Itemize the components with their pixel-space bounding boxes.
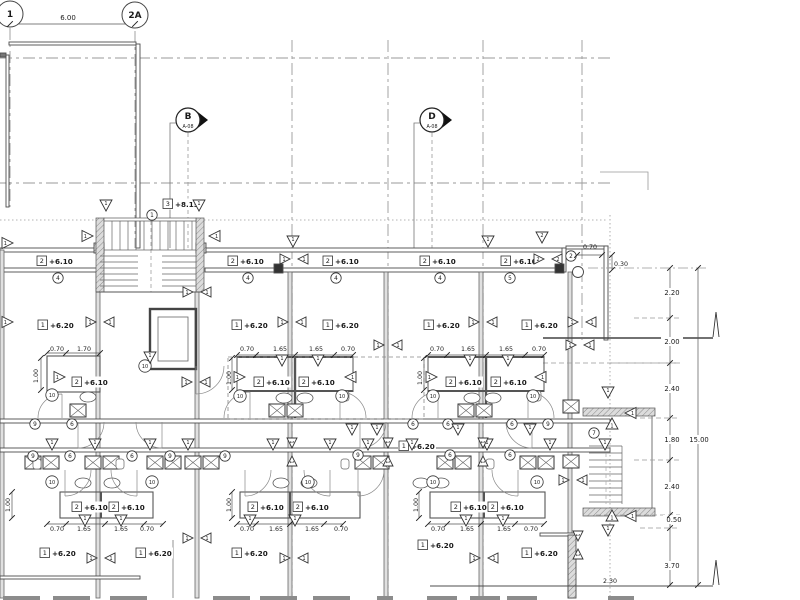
triangle-number: 1 bbox=[291, 237, 294, 243]
bowtie-number: 1 bbox=[491, 320, 494, 326]
dim-text: 1.00 bbox=[226, 498, 233, 512]
label-box-number: 2 bbox=[257, 378, 261, 386]
bowtie-number: 1 bbox=[588, 343, 591, 349]
bowtie-number: 1 bbox=[302, 257, 305, 263]
shower-box bbox=[563, 400, 579, 413]
label-box-number: 1 bbox=[41, 321, 45, 329]
circled-number: 9 bbox=[543, 419, 553, 429]
shower-box bbox=[85, 456, 101, 469]
dim-text: 0.70 bbox=[334, 526, 348, 533]
triangle-marker: 1 bbox=[602, 387, 614, 398]
triangle-number: 1 bbox=[410, 440, 413, 446]
bowtie-number: 1 bbox=[185, 290, 188, 296]
bowtie-number: 1 bbox=[205, 290, 208, 296]
party-wall bbox=[0, 250, 4, 598]
label-elevation: +6.10 bbox=[240, 257, 264, 266]
triangle-marker: 1 bbox=[100, 200, 112, 211]
label-box-number: 1 bbox=[421, 541, 425, 549]
circle-number: 9 bbox=[31, 454, 35, 460]
label-elevation: +6.10 bbox=[500, 503, 524, 512]
section-letter: D bbox=[428, 112, 435, 122]
label-box-number: 2 bbox=[494, 378, 498, 386]
triangle-number: 1 bbox=[606, 388, 609, 394]
bowtie-number: 1 bbox=[302, 556, 305, 562]
circle-number: 10 bbox=[237, 394, 243, 400]
floor-plan-canvas: 12A6.00BA-08DA-083+8.152+6.102+6.102+6.1… bbox=[0, 0, 800, 600]
circle-number: 6 bbox=[448, 453, 452, 459]
level-label: 2+6.10 bbox=[108, 502, 146, 513]
triangle-marker: 2 bbox=[536, 232, 548, 243]
bowtie-marker: 11 bbox=[470, 553, 498, 563]
dim-chain-text: 2.00 bbox=[664, 338, 679, 346]
circle-number: 4 bbox=[246, 276, 250, 282]
break-flags bbox=[713, 312, 719, 585]
bowtie-number: 1 bbox=[581, 478, 584, 484]
bowtie-number: 1 bbox=[479, 440, 485, 443]
bowtie-number: 1 bbox=[570, 320, 573, 326]
circle-number: 6 bbox=[411, 422, 415, 428]
triangle-number: 1 bbox=[104, 201, 107, 207]
circled-number: 9 bbox=[30, 419, 40, 429]
grid-bubble-label: 1 bbox=[7, 10, 13, 20]
level-label: 2+6.10 bbox=[450, 502, 488, 513]
bowtie-number: 1 bbox=[590, 320, 593, 326]
label-elevation: +6.20 bbox=[534, 549, 558, 558]
label-box-number: 1 bbox=[235, 549, 239, 557]
level-label: 2+6.10 bbox=[445, 377, 483, 388]
wall-stub bbox=[53, 596, 90, 600]
label-elevation: +6.20 bbox=[335, 321, 359, 330]
bowtie-marker: 11 bbox=[559, 475, 587, 485]
circle-number: 9 bbox=[33, 422, 37, 428]
level-label: 1+6.20 bbox=[37, 320, 75, 331]
dim-text: 1.65 bbox=[269, 526, 283, 533]
circled-number: 10 bbox=[146, 476, 158, 488]
shower-box bbox=[185, 456, 201, 469]
circle-number: 6 bbox=[70, 422, 74, 428]
triangle-number: 1 bbox=[351, 375, 354, 381]
bowtie-number: 1 bbox=[280, 320, 283, 326]
label-box-number: 2 bbox=[231, 257, 235, 265]
label-box-number: 1 bbox=[525, 321, 529, 329]
triangle-marker: 1 bbox=[452, 424, 464, 435]
label-elevation: +6.10 bbox=[458, 378, 482, 387]
level-label: 1+6.20 bbox=[322, 320, 360, 331]
label-elevation: +6.10 bbox=[121, 503, 145, 512]
label-box-number: 2 bbox=[454, 503, 458, 511]
triangle-number: 1 bbox=[148, 440, 151, 446]
dim-text: 0.70 bbox=[431, 526, 445, 533]
label-elevation: +6.20 bbox=[52, 549, 76, 558]
bowtie-number: 1 bbox=[300, 320, 303, 326]
circle-number: 10 bbox=[430, 394, 436, 400]
party-wall bbox=[479, 272, 483, 598]
dim-chain-text: 0.50 bbox=[666, 516, 681, 524]
section-sheet: A-08 bbox=[182, 124, 193, 130]
break-flag bbox=[713, 560, 719, 585]
shower-box bbox=[269, 404, 285, 417]
bowtie-marker: 22 bbox=[534, 254, 562, 264]
triangle-number: 1 bbox=[4, 320, 7, 326]
triangle-number: 1 bbox=[610, 424, 613, 430]
stair-treads bbox=[112, 221, 192, 250]
dim-text: 1.65 bbox=[305, 526, 319, 533]
circled-number: 6 bbox=[67, 419, 77, 429]
triangle-marker: 1 bbox=[209, 231, 220, 242]
triangle-number: 1 bbox=[428, 375, 431, 381]
shower-box bbox=[43, 456, 59, 469]
triangle-marker: 1 bbox=[524, 424, 536, 435]
dim-text: 1.65 bbox=[114, 526, 128, 533]
triangle-number: 1 bbox=[197, 201, 200, 207]
level-label: 1+6.20 bbox=[231, 320, 269, 331]
bowtie-number: 1 bbox=[574, 533, 580, 536]
triangle-number: 1 bbox=[93, 440, 96, 446]
dim-text: 1.00 bbox=[417, 371, 424, 385]
label-elevation: +6.20 bbox=[244, 549, 268, 558]
shower-box bbox=[287, 404, 303, 417]
toilet-fixture bbox=[297, 393, 313, 403]
label-box-number: 1 bbox=[525, 549, 529, 557]
bowtie-marker: 11 bbox=[280, 254, 308, 264]
toilet-fixture bbox=[80, 392, 96, 402]
wall-stub bbox=[260, 596, 297, 600]
dim-text: 1.65 bbox=[77, 526, 91, 533]
dim-text: 1.65 bbox=[273, 346, 287, 353]
level-label: 1+6.20 bbox=[521, 320, 559, 331]
triangle-marker: 1 bbox=[482, 236, 494, 247]
level-label: 2+6.10 bbox=[247, 502, 285, 513]
stair-treads bbox=[162, 256, 196, 286]
dim-text: 1.00 bbox=[413, 498, 420, 512]
bowtie-number: 1 bbox=[574, 553, 580, 556]
triangle-number: 1 bbox=[603, 440, 606, 446]
level-label: 1+6.20 bbox=[135, 548, 173, 559]
level-label: 2+6.10 bbox=[419, 256, 457, 267]
dim-text: 0.70 bbox=[430, 346, 444, 353]
dim-text: 0.70 bbox=[50, 526, 64, 533]
level-label: 2+6.10 bbox=[71, 502, 109, 513]
level-label: 2+6.10 bbox=[292, 502, 330, 513]
label-box-number: 2 bbox=[75, 503, 79, 511]
circled-number: 5 bbox=[505, 273, 515, 283]
circle-number: 9 bbox=[546, 422, 550, 428]
dim-text: 1.00 bbox=[33, 369, 40, 383]
circle-number: 4 bbox=[56, 276, 60, 282]
corridor-wall bbox=[0, 268, 97, 272]
dim-text: 0.70 bbox=[140, 526, 154, 533]
circle-number: 10 bbox=[49, 393, 55, 399]
bowtie-number: 1 bbox=[384, 460, 390, 463]
triangle-marker: 1 bbox=[602, 525, 614, 536]
triangle-number: 1 bbox=[84, 234, 87, 240]
bowtie-number: 1 bbox=[384, 440, 390, 443]
elevator-shaft bbox=[150, 309, 196, 369]
stair-right bbox=[583, 408, 655, 516]
wall bbox=[0, 53, 6, 57]
shower-box bbox=[458, 404, 474, 417]
wall-stub bbox=[377, 596, 393, 600]
circle-number: 1 bbox=[150, 213, 154, 219]
bowtie-number: 1 bbox=[185, 536, 188, 542]
label-elevation: +6.20 bbox=[430, 541, 454, 550]
triangle-marker: 1 bbox=[345, 372, 356, 383]
triangle-number: 1 bbox=[501, 516, 504, 522]
circled-number: 10 bbox=[527, 390, 539, 402]
label-box-number: 2 bbox=[40, 257, 44, 265]
dim-overall-text: 15.00 bbox=[689, 436, 708, 444]
bowtie-number: 2 bbox=[556, 257, 559, 263]
triangle-marker: 1 bbox=[426, 372, 437, 383]
bowtie-number: 2 bbox=[536, 257, 539, 263]
bowtie-marker: 11 bbox=[87, 553, 115, 563]
circled-number: 10 bbox=[302, 476, 314, 488]
circle-number: 6 bbox=[68, 454, 72, 460]
dim-text: 0.30 bbox=[614, 261, 628, 268]
triangle-number: 1 bbox=[186, 440, 189, 446]
toilet-fixture bbox=[276, 393, 292, 403]
level-label: 2+6.10 bbox=[487, 502, 525, 513]
level-label: 1+6.20 bbox=[39, 548, 77, 559]
circled-number: 10 bbox=[427, 390, 439, 402]
circle-number: 9 bbox=[223, 454, 227, 460]
dim-text: 1.65 bbox=[460, 526, 474, 533]
label-elevation: +6.20 bbox=[50, 321, 74, 330]
wall bbox=[0, 576, 140, 579]
bowtie-number: 1 bbox=[288, 440, 294, 443]
circled-number: 4 bbox=[243, 273, 253, 283]
bowtie-number: 1 bbox=[472, 556, 475, 562]
triangle-number: 1 bbox=[280, 356, 283, 362]
party-wall bbox=[288, 272, 292, 598]
dim-text: 0.70 bbox=[240, 526, 254, 533]
circled-number: 6 bbox=[65, 451, 75, 461]
toilet-fixture bbox=[464, 393, 480, 403]
section-marker: BA-08 bbox=[176, 108, 208, 132]
circled-number: 6 bbox=[505, 450, 515, 460]
level-label: 1+6.20 bbox=[521, 548, 559, 559]
bowtie-number: 1 bbox=[479, 460, 485, 463]
level-label: 1+6.20 bbox=[423, 320, 461, 331]
triangle-number: 1 bbox=[215, 234, 218, 240]
label-elevation: +6.10 bbox=[335, 257, 359, 266]
label-box-number: 1 bbox=[402, 442, 406, 450]
level-label: 2+6.10 bbox=[36, 256, 74, 267]
triangle-number: 1 bbox=[548, 440, 551, 446]
dim-chain-text: 2.40 bbox=[664, 483, 679, 491]
bowtie-number: 1 bbox=[205, 536, 208, 542]
dim-text: 0.70 bbox=[240, 346, 254, 353]
circle-number: 9 bbox=[356, 453, 360, 459]
level-label: 1+6.20 bbox=[417, 540, 455, 551]
circle-number: 4 bbox=[438, 276, 442, 282]
level-label: 2+6.10 bbox=[500, 256, 538, 267]
circled-number: 4 bbox=[435, 273, 445, 283]
dimension-lines bbox=[10, 24, 706, 585]
label-box-number: 2 bbox=[449, 378, 453, 386]
corridor2-wall bbox=[0, 448, 610, 452]
label-elevation: +6.10 bbox=[463, 503, 487, 512]
dashed-zone bbox=[228, 357, 424, 419]
dim-chain-text: 2.40 bbox=[664, 385, 679, 393]
bowtie-number: 1 bbox=[568, 343, 571, 349]
triangle-number: 1 bbox=[631, 514, 634, 520]
circled-number: 1 bbox=[147, 210, 157, 220]
bowtie-number: 1 bbox=[492, 556, 495, 562]
triangle-number: 1 bbox=[56, 375, 59, 381]
elevator-cab bbox=[158, 317, 188, 361]
toilet-fixture bbox=[273, 478, 289, 488]
circle-number: 10 bbox=[149, 480, 155, 486]
circled-number: 10 bbox=[234, 390, 246, 402]
dim-text: 1.70 bbox=[77, 346, 91, 353]
party-wall bbox=[384, 272, 388, 598]
triangle-number: 1 bbox=[248, 516, 251, 522]
dim-chain-text: 2.20 bbox=[664, 289, 679, 297]
wall-stub bbox=[313, 596, 350, 600]
triangle-number: 1 bbox=[148, 353, 151, 359]
label-box-number: 2 bbox=[75, 378, 79, 386]
circle-number: 10 bbox=[430, 480, 436, 486]
bowtie-marker: 11 bbox=[280, 553, 308, 563]
label-elevation: +6.10 bbox=[84, 503, 108, 512]
level-label: 1+6.20 bbox=[231, 548, 269, 559]
corridor-wall bbox=[205, 268, 564, 272]
circled-number: 2 bbox=[566, 251, 576, 261]
triangle-number: 1 bbox=[468, 356, 471, 362]
triangle-number: 1 bbox=[50, 440, 53, 446]
circled-number: 4 bbox=[53, 273, 63, 283]
sink-fixture bbox=[116, 459, 124, 469]
label-box-number: 2 bbox=[326, 257, 330, 265]
triangle-number: 1 bbox=[271, 440, 274, 446]
stair-top bbox=[96, 218, 204, 292]
corridor-wall bbox=[0, 248, 97, 252]
triangle-number: 1 bbox=[486, 237, 489, 243]
label-box-number: 2 bbox=[296, 503, 300, 511]
dim-text: 1.65 bbox=[461, 346, 475, 353]
shower-box bbox=[70, 404, 86, 417]
column bbox=[555, 264, 564, 273]
triangle-marker: 1 bbox=[234, 372, 245, 383]
adjacent-edge bbox=[600, 172, 648, 190]
bowtie-number: 1 bbox=[376, 343, 379, 349]
label-box-number: 3 bbox=[166, 200, 170, 208]
circled-number: 10 bbox=[531, 476, 543, 488]
dim-text: 0.70 bbox=[532, 346, 546, 353]
dim-text: 2.30 bbox=[603, 578, 617, 585]
circle-number: 9 bbox=[168, 454, 172, 460]
label-box-number: 2 bbox=[504, 257, 508, 265]
circle-number: 5 bbox=[508, 276, 512, 282]
section-b-leader bbox=[170, 123, 181, 248]
wall-stub bbox=[507, 596, 537, 600]
label-elevation: +6.10 bbox=[266, 378, 290, 387]
level-label: 2+6.10 bbox=[298, 377, 336, 388]
wall-stub bbox=[213, 596, 250, 600]
triangle-number: 1 bbox=[606, 526, 609, 532]
circled-number: 7 bbox=[589, 428, 599, 438]
stair-treads bbox=[100, 256, 138, 286]
shower-box bbox=[538, 456, 554, 469]
triangle-number: 1 bbox=[541, 375, 544, 381]
triangle-number: 1 bbox=[610, 516, 613, 522]
dim-text: 1.00 bbox=[226, 371, 233, 385]
label-box-number: 2 bbox=[423, 257, 427, 265]
triangle-number: 1 bbox=[631, 411, 634, 417]
toilet-fixture bbox=[104, 478, 120, 488]
stair-wall bbox=[196, 218, 204, 292]
sink-fixture bbox=[341, 459, 349, 469]
elevator bbox=[150, 309, 196, 369]
wall bbox=[604, 246, 608, 340]
circled-number: 9 bbox=[165, 451, 175, 461]
circled-number: 10 bbox=[46, 476, 58, 488]
dim-text: 1.65 bbox=[309, 346, 323, 353]
bowtie-number: 1 bbox=[561, 478, 564, 484]
label-box-number: 1 bbox=[43, 549, 47, 557]
triangle-number: 1 bbox=[506, 356, 509, 362]
triangle-marker: 1 bbox=[276, 355, 288, 366]
circle-number: 2 bbox=[569, 254, 573, 260]
triangle-number: 1 bbox=[119, 516, 122, 522]
break-flag bbox=[713, 312, 719, 337]
wall-stub bbox=[608, 596, 634, 600]
label-box-number: 1 bbox=[235, 321, 239, 329]
triangle-marker: 1 bbox=[287, 236, 299, 247]
toilet-fixture bbox=[485, 393, 501, 403]
circle-number: 6 bbox=[508, 453, 512, 459]
triangle-marker: 1 bbox=[464, 355, 476, 366]
section-d-leader bbox=[414, 123, 425, 248]
label-box-number: 2 bbox=[112, 503, 116, 511]
label-elevation: +6.10 bbox=[503, 378, 527, 387]
triangle-number: 1 bbox=[236, 375, 239, 381]
circled-number: 9 bbox=[220, 451, 230, 461]
triangle-marker: 1 bbox=[346, 424, 358, 435]
dim-text: 0.70 bbox=[583, 244, 597, 251]
label-elevation: +6.10 bbox=[260, 503, 284, 512]
triangle-marker: 1 bbox=[54, 372, 65, 383]
bowtie-number: 1 bbox=[89, 556, 92, 562]
triangle-number: 1 bbox=[366, 440, 369, 446]
circle-number: 6 bbox=[510, 422, 514, 428]
shower-box bbox=[455, 456, 471, 469]
triangle-number: 2 bbox=[540, 233, 543, 239]
level-label: 1+6.20 bbox=[398, 441, 436, 452]
label-box-number: 2 bbox=[251, 503, 255, 511]
bowtie-number: 1 bbox=[282, 257, 285, 263]
triangle-marker: 1 bbox=[312, 355, 324, 366]
shower-box bbox=[147, 456, 163, 469]
circle-number: 10 bbox=[530, 394, 536, 400]
bowtie-number: 1 bbox=[108, 320, 111, 326]
triangle-marker: 1 bbox=[82, 231, 93, 242]
triangle-number: 1 bbox=[456, 425, 459, 431]
shower-box bbox=[520, 456, 536, 469]
level-label: 2+6.10 bbox=[71, 377, 109, 388]
shower-box bbox=[203, 456, 219, 469]
stair-treads bbox=[589, 446, 622, 502]
dim-text: 0.70 bbox=[341, 346, 355, 353]
label-elevation: +6.10 bbox=[513, 257, 537, 266]
circled-number: 10 bbox=[336, 390, 348, 402]
bowtie-number: 1 bbox=[184, 380, 187, 386]
dim-text: 1.65 bbox=[497, 526, 511, 533]
wall bbox=[136, 44, 140, 248]
wall bbox=[9, 42, 136, 45]
label-box-number: 2 bbox=[491, 503, 495, 511]
